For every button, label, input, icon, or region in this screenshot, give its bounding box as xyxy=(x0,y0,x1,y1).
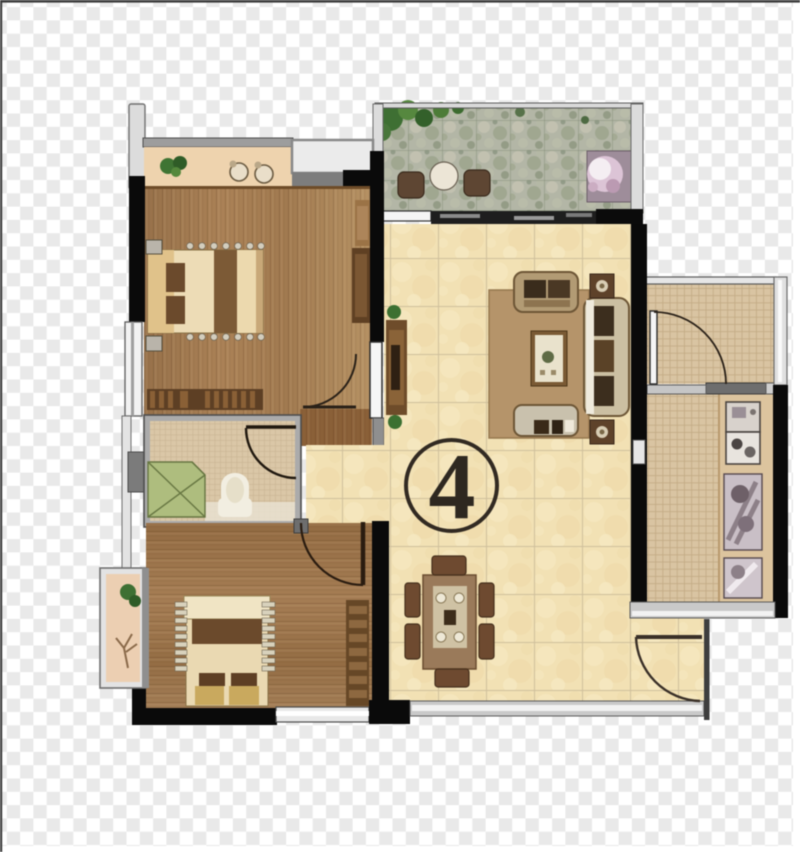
svg-text:4: 4 xyxy=(429,435,476,539)
